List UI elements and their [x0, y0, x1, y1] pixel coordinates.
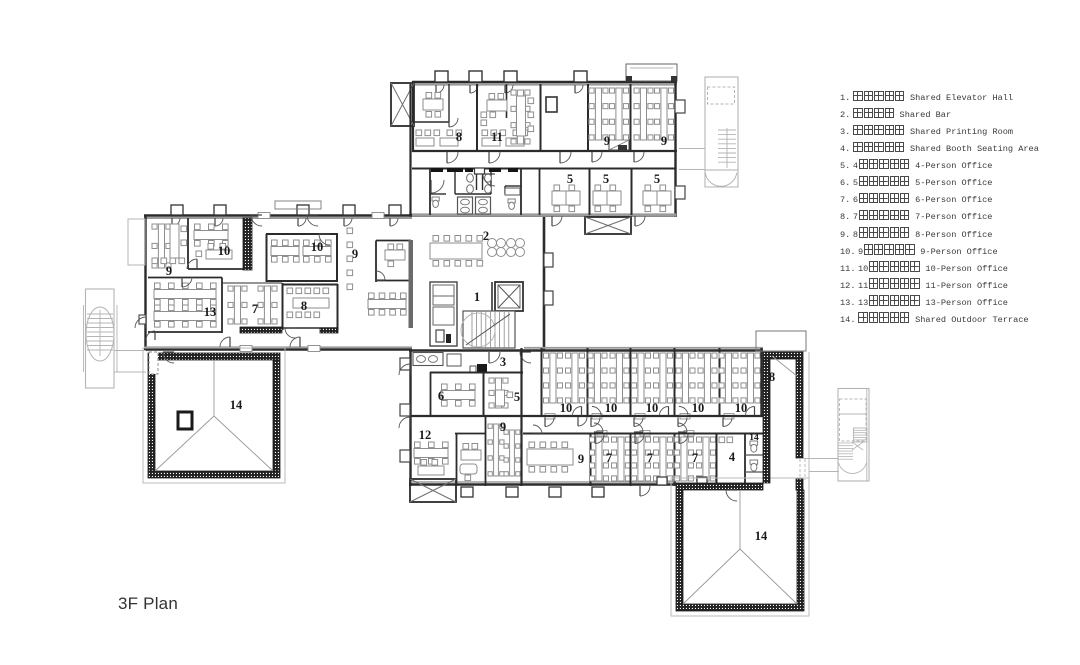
- svg-text:8: 8: [301, 299, 307, 313]
- svg-text:10: 10: [692, 401, 705, 415]
- svg-text:9: 9: [661, 134, 667, 148]
- svg-text:10: 10: [646, 401, 659, 415]
- svg-text:13: 13: [204, 305, 217, 319]
- svg-text:5: 5: [654, 172, 660, 186]
- svg-text:7: 7: [606, 451, 612, 465]
- svg-text:10: 10: [605, 401, 618, 415]
- svg-text:3: 3: [500, 355, 506, 369]
- svg-text:14: 14: [755, 529, 768, 543]
- svg-text:1: 1: [474, 290, 480, 304]
- svg-text:9: 9: [500, 420, 506, 434]
- svg-text:10: 10: [735, 401, 748, 415]
- svg-text:11: 11: [491, 130, 503, 144]
- svg-text:9: 9: [604, 134, 610, 148]
- svg-text:5: 5: [567, 172, 573, 186]
- svg-text:9: 9: [166, 264, 172, 278]
- svg-text:8: 8: [769, 370, 775, 384]
- svg-text:8: 8: [456, 130, 462, 144]
- svg-text:10: 10: [218, 244, 231, 258]
- svg-text:5: 5: [514, 390, 520, 404]
- svg-text:10: 10: [560, 401, 573, 415]
- svg-text:10: 10: [311, 240, 324, 254]
- svg-text:12: 12: [419, 428, 432, 442]
- svg-text:7: 7: [252, 302, 258, 316]
- svg-text:9: 9: [578, 452, 584, 466]
- svg-text:5: 5: [603, 172, 609, 186]
- svg-text:4: 4: [729, 450, 736, 464]
- svg-text:7: 7: [692, 451, 698, 465]
- svg-text:7: 7: [647, 451, 653, 465]
- svg-text:6: 6: [438, 389, 444, 403]
- svg-text:14: 14: [749, 433, 759, 443]
- svg-text:14: 14: [230, 398, 243, 412]
